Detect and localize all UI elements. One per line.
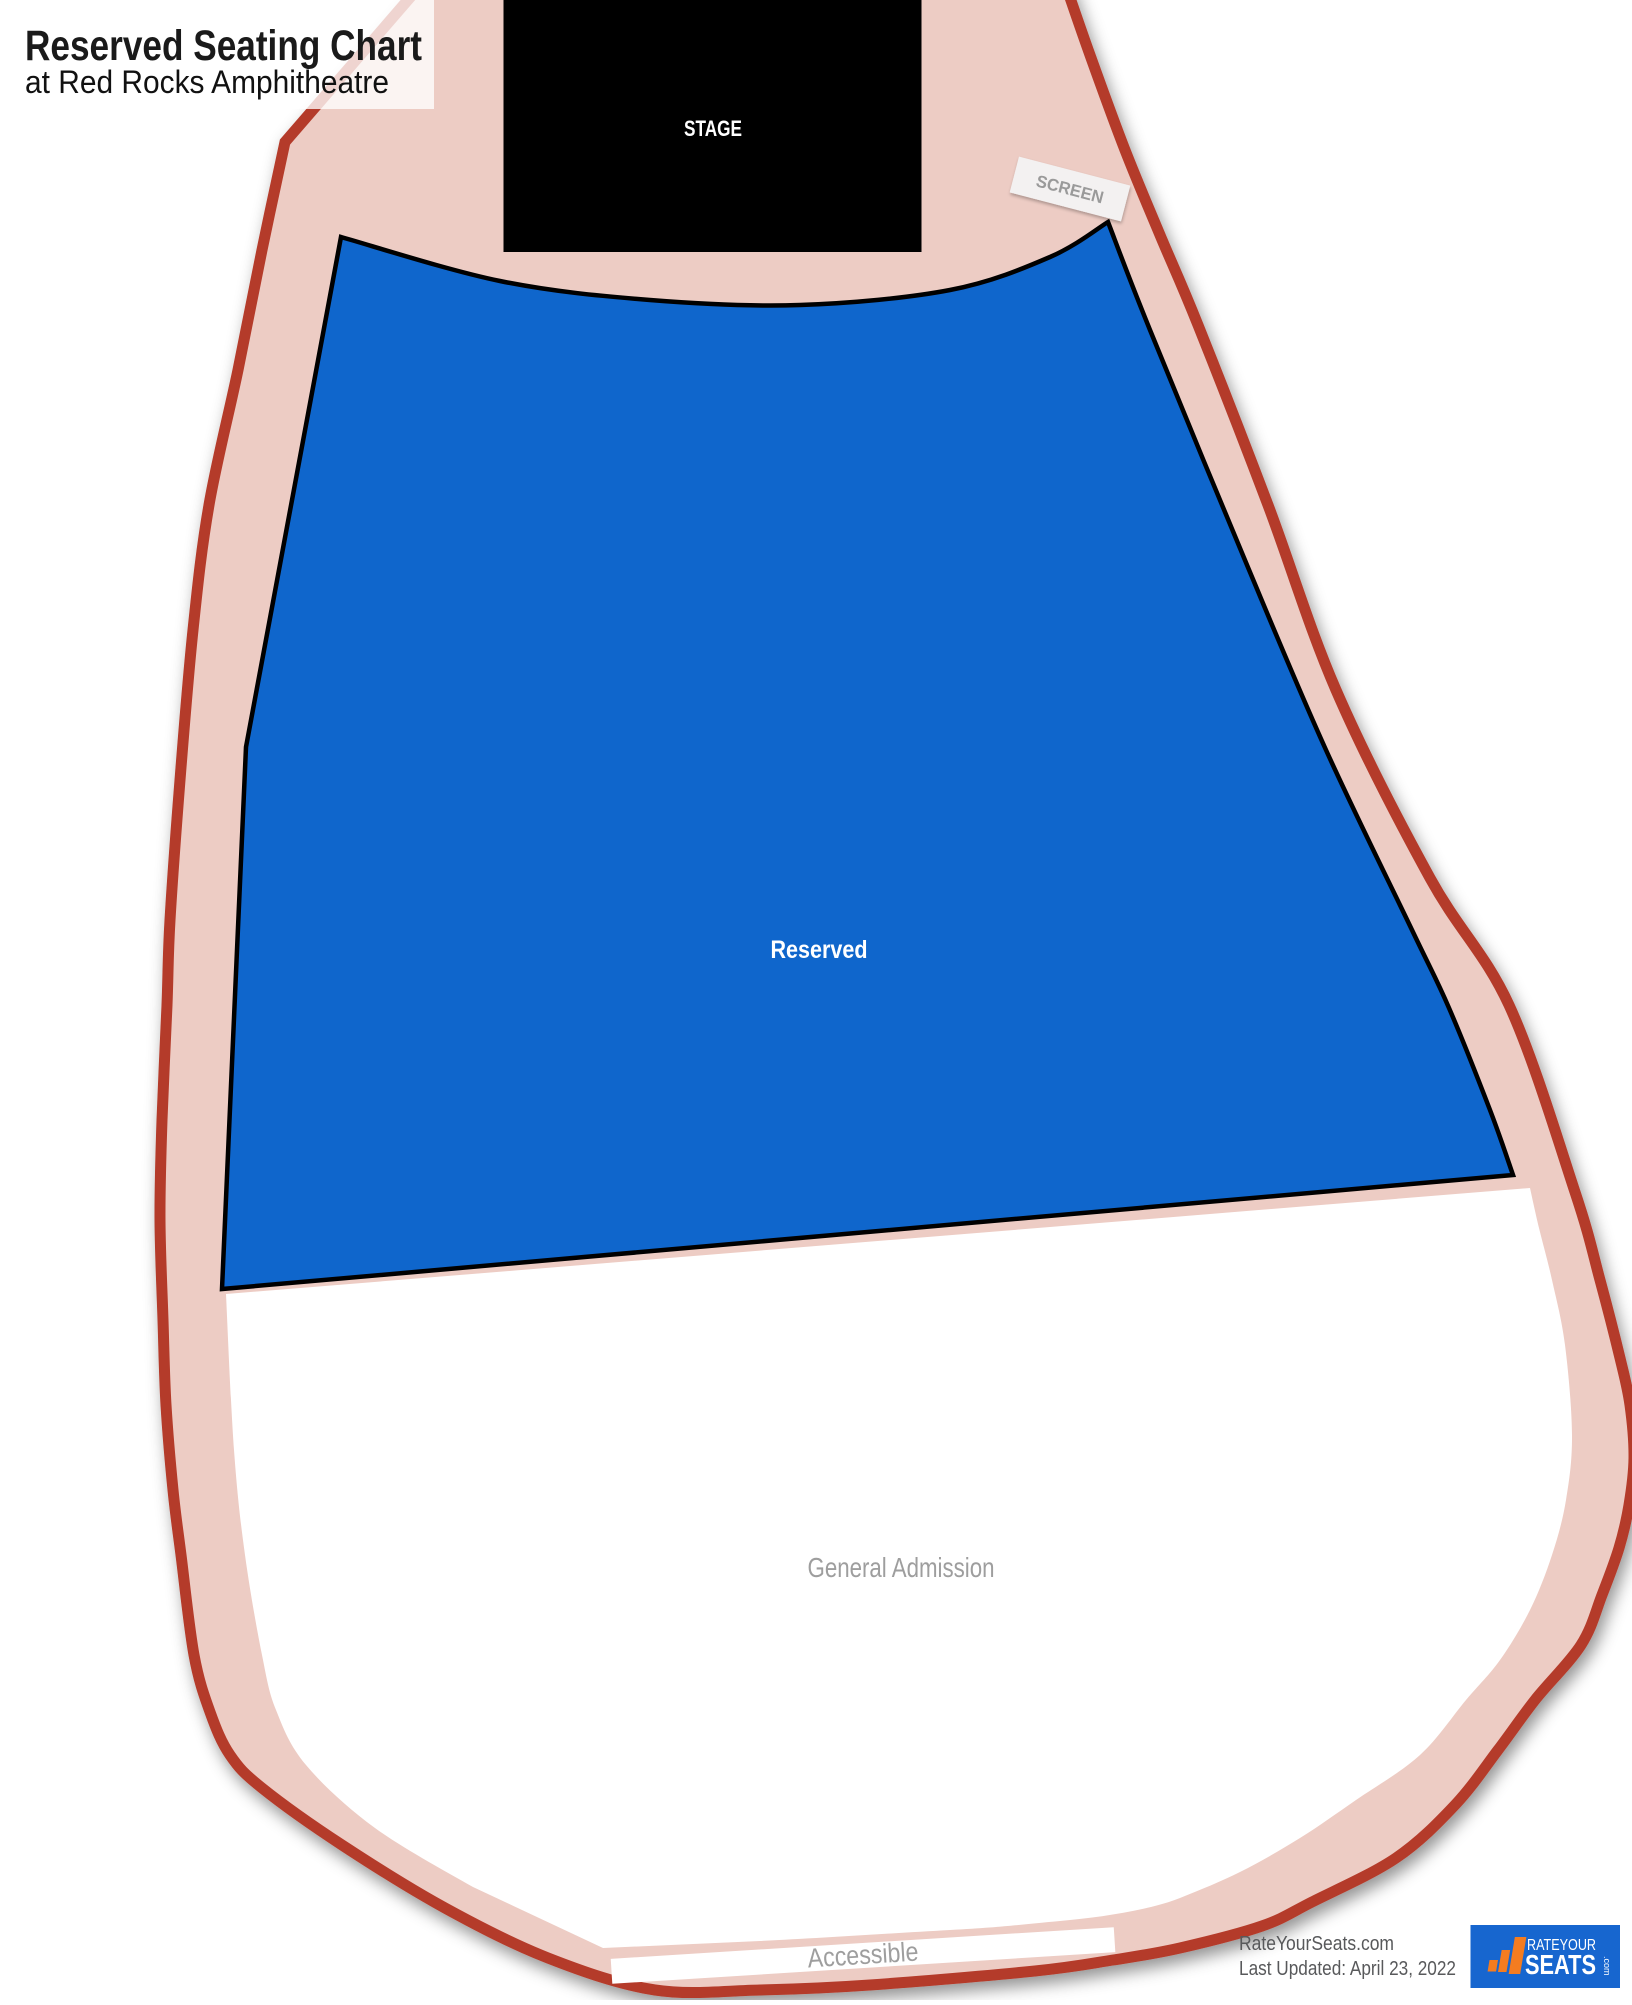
svg-text:Last Updated: April 23, 2022: Last Updated: April 23, 2022 [1239, 1958, 1456, 1980]
svg-text:at Red Rocks Amphitheatre: at Red Rocks Amphitheatre [25, 64, 389, 100]
svg-text:Reserved: Reserved [771, 936, 868, 964]
svg-text:SEATS: SEATS [1525, 1949, 1596, 1980]
svg-text:STAGE: STAGE [684, 116, 742, 141]
svg-text:General Admission: General Admission [808, 1552, 995, 1583]
svg-text:RateYourSeats.com: RateYourSeats.com [1239, 1933, 1394, 1955]
svg-text:.com: .com [1602, 1956, 1612, 1976]
svg-text:Reserved Seating Chart: Reserved Seating Chart [25, 22, 422, 70]
